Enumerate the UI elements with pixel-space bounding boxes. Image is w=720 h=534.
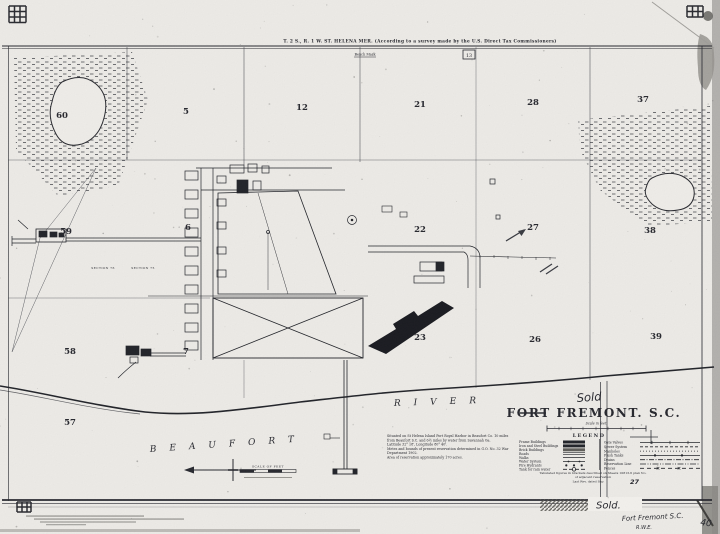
section-number: 22 [414, 225, 426, 235]
legend-swatch-gray-bar [563, 448, 585, 451]
sold-annotation-top: Sold [576, 389, 602, 405]
section-number: 59 [60, 227, 72, 237]
margin-initials: R.W.E. [636, 525, 652, 531]
attribution-line2: of adjacent reservation [575, 475, 611, 479]
map-title: FORT FREMONT. S.C. [507, 406, 682, 420]
margin-number: 40 [700, 518, 713, 530]
section-number: 60 [56, 111, 68, 121]
section-number: 28 [527, 98, 539, 108]
section-label-76: SECTION 76 [91, 266, 115, 270]
township-line: T. 2 S., R. 1 W. ST. HELENA MER. (Accord… [283, 40, 556, 45]
note-line: Area of reservation approximately 170 ac… [386, 456, 463, 460]
scanned-map-sheet: T. 2 S., R. 1 W. ST. HELENA MER. (Accord… [0, 0, 720, 534]
section-number: 21 [414, 100, 426, 110]
revision-number: 27 [630, 478, 640, 486]
attribution-line3: Last Rev. dated Sep [572, 480, 603, 484]
sold-annotation-bottom: Sold. [596, 501, 621, 512]
section-number: 7 [183, 347, 189, 357]
legend-title: LEGEND [573, 433, 606, 439]
section-number: 6 [185, 223, 191, 233]
legend-swatch-solid-bar [563, 441, 585, 444]
section-number: 26 [529, 335, 541, 345]
section-label-75: SECTION 75 [131, 266, 155, 270]
section-number: 39 [650, 332, 662, 342]
legend-swatch-solid-bar [563, 444, 585, 447]
section-number: 12 [296, 103, 308, 113]
title-scale-caption: Scale in feet [586, 422, 607, 426]
section-number: 57 [64, 418, 76, 428]
section-number: 27 [527, 223, 539, 233]
section-number: 37 [637, 95, 649, 105]
section-number: 23 [414, 333, 426, 343]
section-number: 58 [64, 347, 76, 357]
legend-item-label: Fences [604, 467, 616, 471]
section-number: 5 [183, 107, 189, 117]
scale-of-feet-caption: SCALE OF FEET [252, 465, 284, 469]
section-number: 38 [644, 226, 656, 236]
pond-right [645, 173, 694, 210]
marker-13-label: 13 [466, 53, 472, 59]
